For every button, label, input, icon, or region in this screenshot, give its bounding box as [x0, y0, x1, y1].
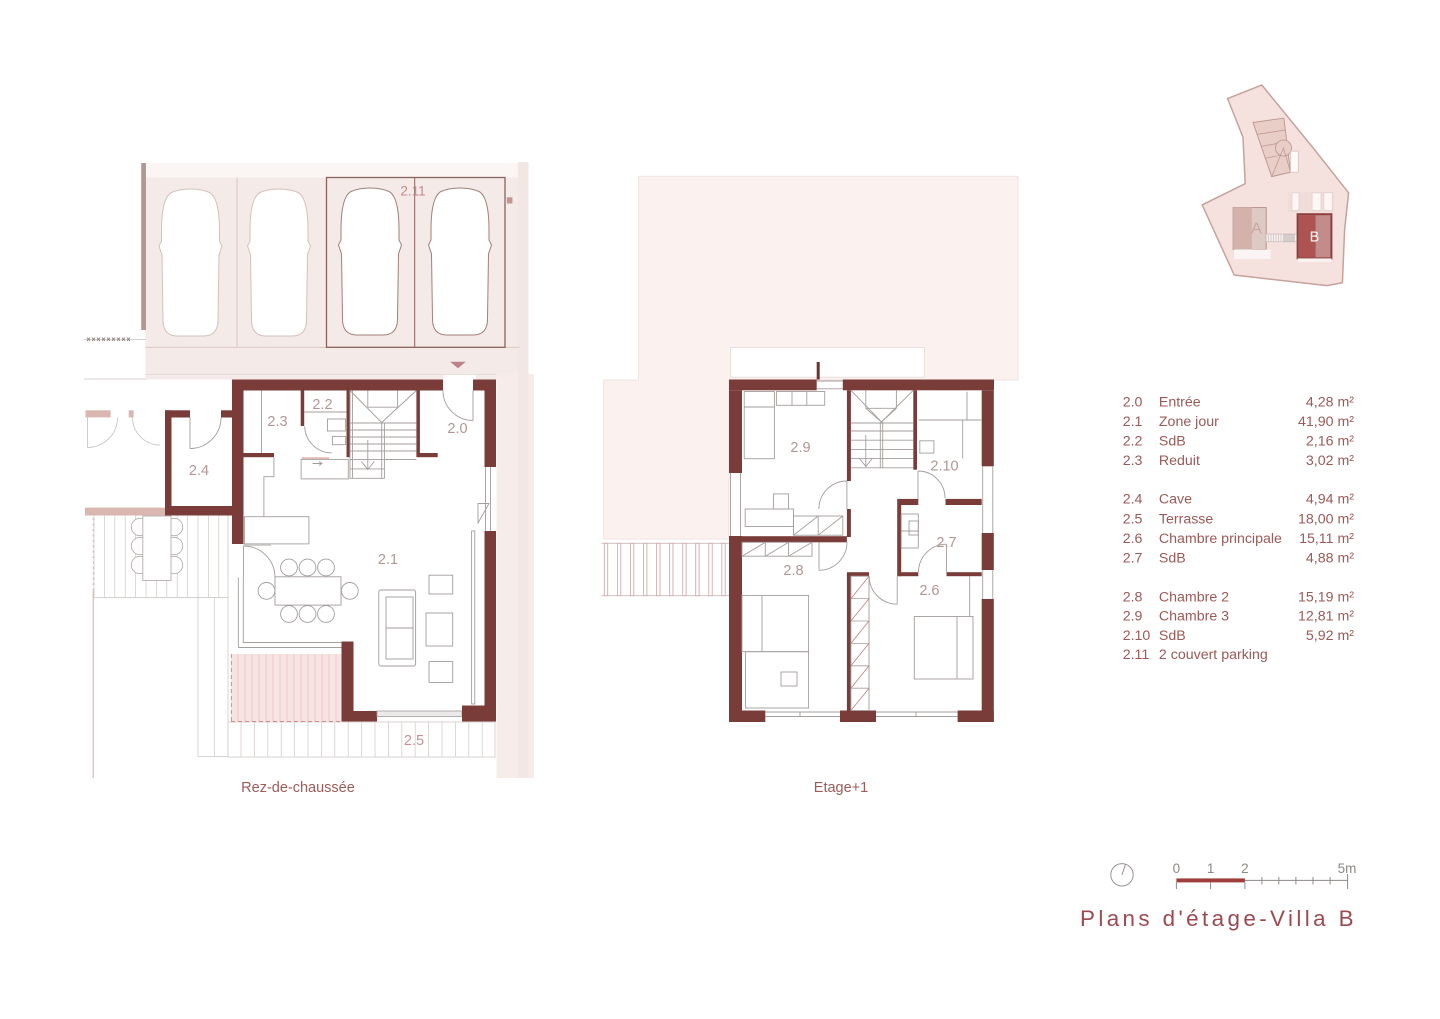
svg-text:15,11 m²: 15,11 m² — [1299, 531, 1354, 547]
svg-text:4,94 m²: 4,94 m² — [1306, 492, 1354, 508]
svg-text:2.6: 2.6 — [919, 583, 939, 599]
svg-text:2 couvert parking: 2 couvert parking — [1159, 647, 1268, 663]
svg-text:2.7: 2.7 — [1123, 550, 1143, 566]
svg-text:2.5: 2.5 — [1123, 511, 1143, 527]
svg-text:2.9: 2.9 — [790, 440, 810, 456]
svg-text:B: B — [1310, 230, 1320, 246]
svg-text:Cave: Cave — [1159, 492, 1192, 508]
svg-text:2.5: 2.5 — [404, 733, 424, 749]
svg-text:Terrasse: Terrasse — [1159, 511, 1214, 527]
svg-text:2.0: 2.0 — [447, 421, 467, 437]
svg-text:12,81 m²: 12,81 m² — [1298, 609, 1354, 625]
svg-text:2.6: 2.6 — [1123, 531, 1143, 547]
svg-text:2,16 m²: 2,16 m² — [1306, 433, 1354, 449]
svg-text:5,92 m²: 5,92 m² — [1306, 628, 1354, 644]
svg-text:4,88 m²: 4,88 m² — [1306, 550, 1354, 566]
svg-text:Chambre 2: Chambre 2 — [1159, 589, 1229, 605]
svg-text:15,19 m²: 15,19 m² — [1298, 589, 1354, 605]
svg-text:2.9: 2.9 — [1123, 609, 1143, 625]
svg-text:SdB: SdB — [1159, 628, 1186, 644]
svg-text:5m: 5m — [1338, 861, 1357, 876]
svg-text:41,90 m²: 41,90 m² — [1298, 414, 1354, 430]
svg-text:2.3: 2.3 — [1123, 453, 1143, 469]
svg-text:0: 0 — [1173, 861, 1181, 876]
svg-text:SdB: SdB — [1159, 550, 1186, 566]
svg-text:Etage+1: Etage+1 — [814, 780, 868, 796]
svg-text:2.4: 2.4 — [189, 463, 209, 479]
svg-text:3,02 m²: 3,02 m² — [1306, 453, 1354, 469]
svg-text:2.0: 2.0 — [1123, 395, 1143, 411]
svg-text:SdB: SdB — [1159, 433, 1186, 449]
svg-text:Plans d'étage-Villa B: Plans d'étage-Villa B — [1080, 906, 1357, 931]
svg-text:2.11: 2.11 — [1123, 647, 1150, 663]
svg-text:4,28 m²: 4,28 m² — [1306, 395, 1354, 411]
svg-text:2.8: 2.8 — [783, 563, 803, 579]
svg-text:Entrée: Entrée — [1159, 395, 1201, 411]
svg-text:2.2: 2.2 — [312, 397, 332, 413]
svg-text:2: 2 — [1241, 861, 1249, 876]
svg-text:Reduit: Reduit — [1159, 453, 1200, 469]
svg-text:2.10: 2.10 — [930, 459, 958, 475]
svg-text:Chambre 3: Chambre 3 — [1159, 609, 1229, 625]
svg-text:Zone jour: Zone jour — [1159, 414, 1219, 430]
svg-text:Chambre principale: Chambre principale — [1159, 531, 1282, 547]
svg-text:A: A — [1251, 221, 1262, 238]
svg-text:2.4: 2.4 — [1123, 492, 1143, 508]
svg-text:2.2: 2.2 — [1123, 433, 1143, 449]
svg-text:2.3: 2.3 — [267, 414, 287, 430]
svg-text:2.10: 2.10 — [1123, 628, 1151, 644]
svg-text:18,00 m²: 18,00 m² — [1298, 511, 1354, 527]
svg-text:2.1: 2.1 — [1123, 414, 1143, 430]
svg-text:1: 1 — [1207, 861, 1215, 876]
svg-text:2.7: 2.7 — [936, 535, 956, 551]
svg-text:2.8: 2.8 — [1123, 589, 1143, 605]
svg-text:2.11: 2.11 — [400, 184, 425, 199]
svg-text:2.1: 2.1 — [378, 552, 398, 568]
svg-text:Rez-de-chaussée: Rez-de-chaussée — [241, 780, 355, 796]
